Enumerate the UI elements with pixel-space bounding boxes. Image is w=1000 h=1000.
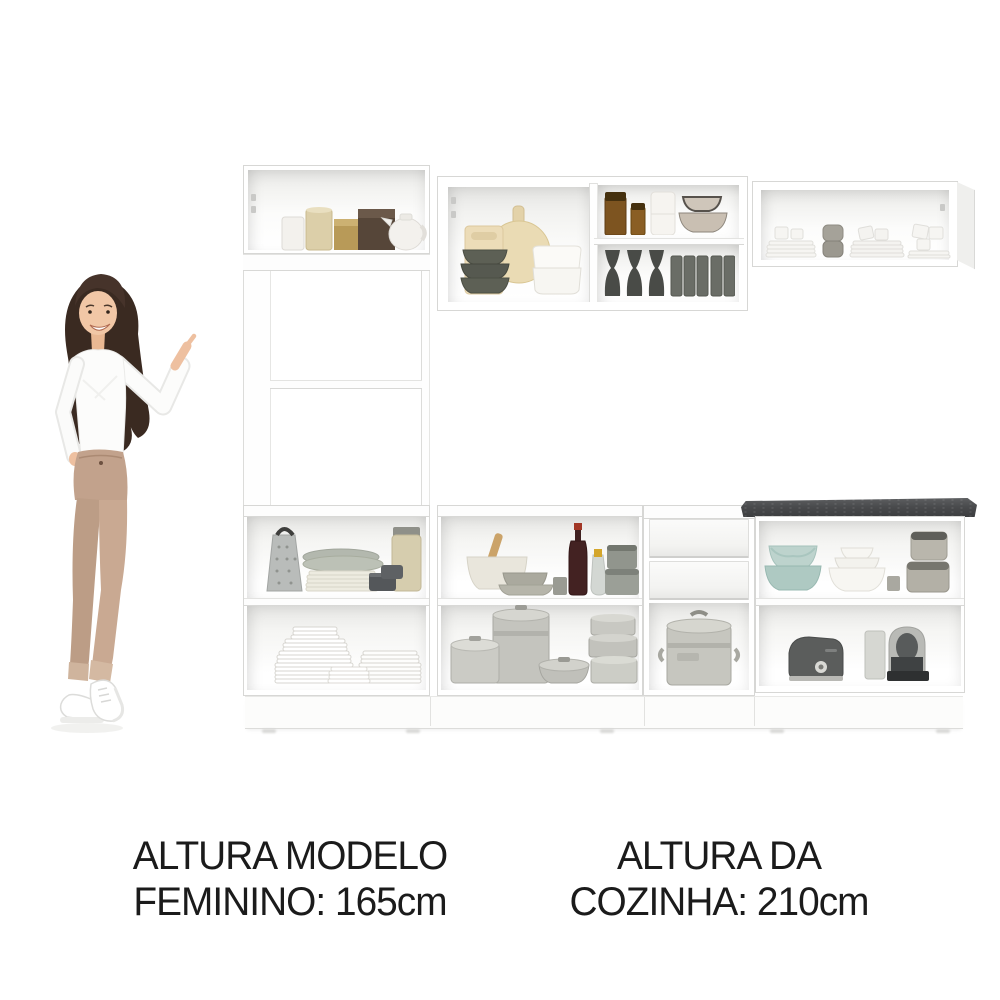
base-right-bottom-items bbox=[759, 605, 961, 685]
oil-bottle bbox=[591, 555, 607, 595]
pot-stack bbox=[589, 614, 637, 683]
base-middle-bottom-items bbox=[441, 605, 639, 688]
toaster bbox=[789, 637, 843, 681]
drawer-unit-pot bbox=[649, 605, 749, 688]
drawer-top bbox=[649, 519, 749, 558]
wall-center-right-top-items bbox=[597, 187, 735, 235]
wall-center-right-bottom-items bbox=[597, 244, 735, 300]
gray-tumblers bbox=[671, 256, 735, 296]
base-left-top-items bbox=[247, 517, 425, 596]
cheese-grater bbox=[267, 535, 302, 591]
product-banner: ALTURA MODELO FEMININO: 165cm ALTURA DA … bbox=[0, 0, 1000, 1000]
white-cup bbox=[858, 226, 874, 241]
small-cup bbox=[887, 576, 900, 591]
tall-cabinet-left-stile bbox=[243, 271, 271, 505]
kitchen-plinth bbox=[245, 696, 963, 729]
caption-kitchen-line1: ALTURA DA bbox=[554, 833, 884, 879]
white-mug bbox=[282, 217, 304, 250]
caption-model-height: ALTURA MODELO FEMININO: 165cm bbox=[125, 833, 455, 925]
saucer-stack bbox=[328, 667, 370, 683]
amber-jar bbox=[605, 197, 626, 235]
caption-kitchen-height: ALTURA DA COZINHA: 210cm bbox=[554, 833, 884, 925]
base-left-bottom-items bbox=[247, 605, 425, 688]
tall-cabinet-rail bbox=[243, 254, 430, 271]
base-right-top-items bbox=[759, 520, 961, 596]
amber-jar-small bbox=[631, 207, 645, 235]
countertop bbox=[741, 498, 977, 517]
white-cup bbox=[912, 224, 929, 239]
glass-jar bbox=[392, 535, 421, 591]
caption-model-line2: FEMININO: 165cm bbox=[125, 879, 455, 925]
wall-cabinet-right-side bbox=[957, 182, 975, 272]
dark-goblets bbox=[605, 250, 664, 296]
white-nested-bowls bbox=[829, 548, 885, 591]
tall-cabinet-top-items bbox=[246, 168, 428, 252]
gray-bowl bbox=[499, 585, 553, 595]
base-middle-top-items bbox=[441, 517, 639, 596]
wall-center-left-items bbox=[449, 190, 587, 300]
gold-canister bbox=[306, 209, 332, 250]
white-bowl-stack bbox=[533, 246, 581, 294]
small-cup bbox=[553, 577, 567, 595]
tall-cabinet-mid-shelf bbox=[270, 380, 422, 389]
tall-cabinet-right-stile bbox=[421, 271, 430, 505]
olive-bowl-stack bbox=[461, 250, 509, 293]
white-cup bbox=[775, 227, 788, 239]
gray-canister-stack bbox=[907, 532, 949, 592]
teal-bowl-stack bbox=[765, 546, 821, 590]
espresso-machine bbox=[865, 627, 929, 681]
beige-bowl-stack bbox=[679, 197, 727, 232]
mini-pot bbox=[381, 565, 403, 579]
caption-model-line1: ALTURA MODELO bbox=[125, 833, 455, 879]
gray-canister-stack bbox=[823, 225, 843, 257]
caption-kitchen-line2: COZINHA: 210cm bbox=[554, 879, 884, 925]
wall-right-items bbox=[757, 219, 953, 259]
white-teapot bbox=[389, 218, 423, 250]
drawer-bottom bbox=[649, 561, 749, 600]
